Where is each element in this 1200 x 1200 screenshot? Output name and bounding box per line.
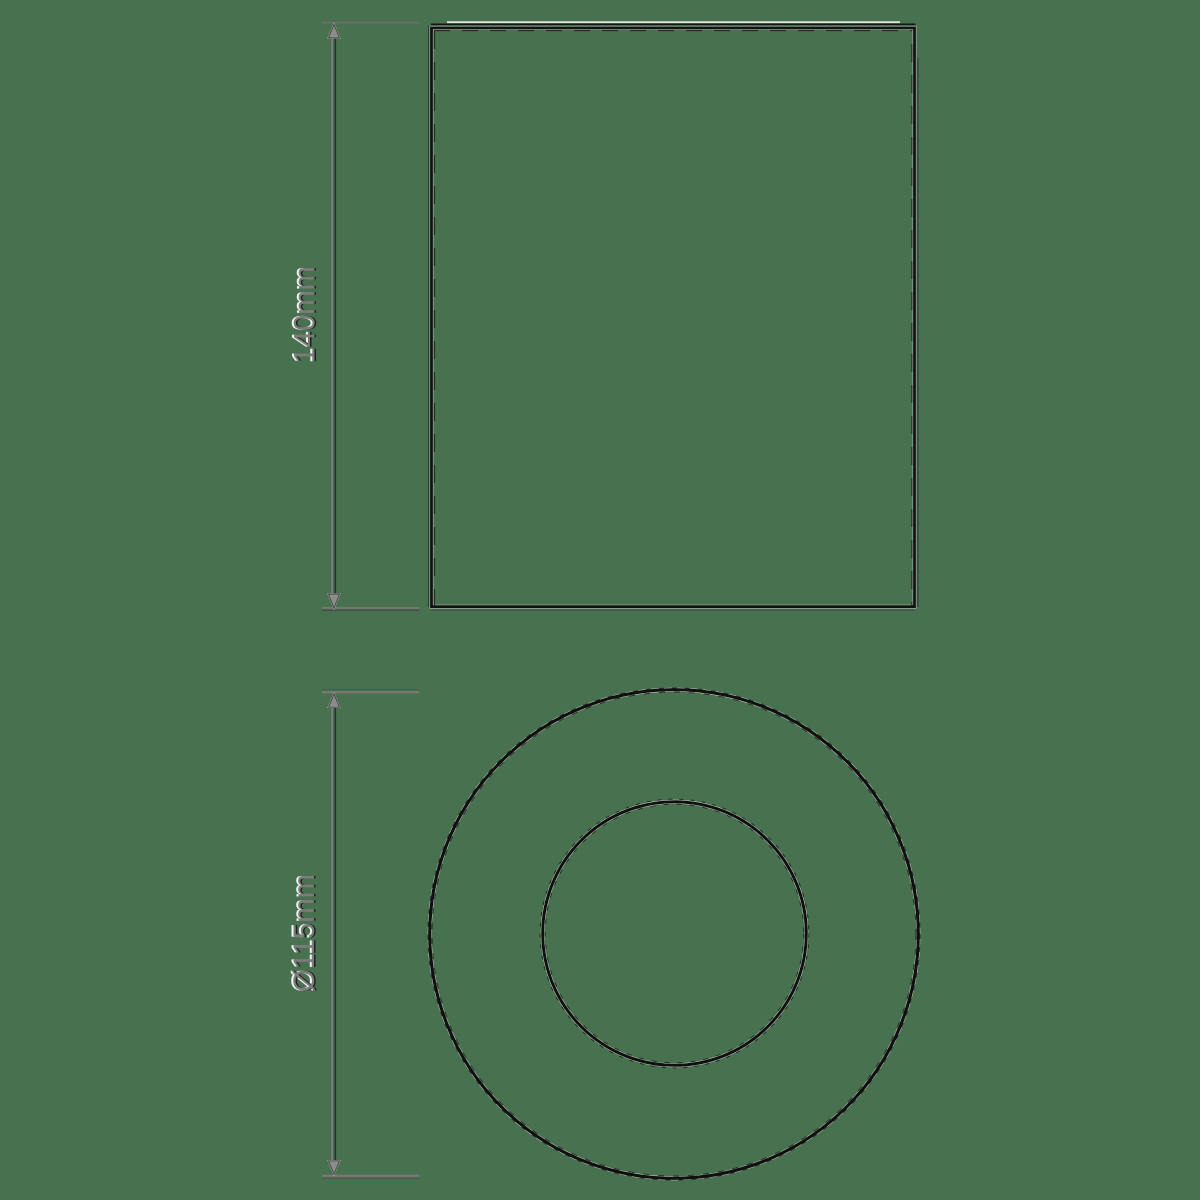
svg-text:Ø115mm: Ø115mm [289, 874, 321, 992]
svg-text:140mm: 140mm [289, 266, 321, 363]
